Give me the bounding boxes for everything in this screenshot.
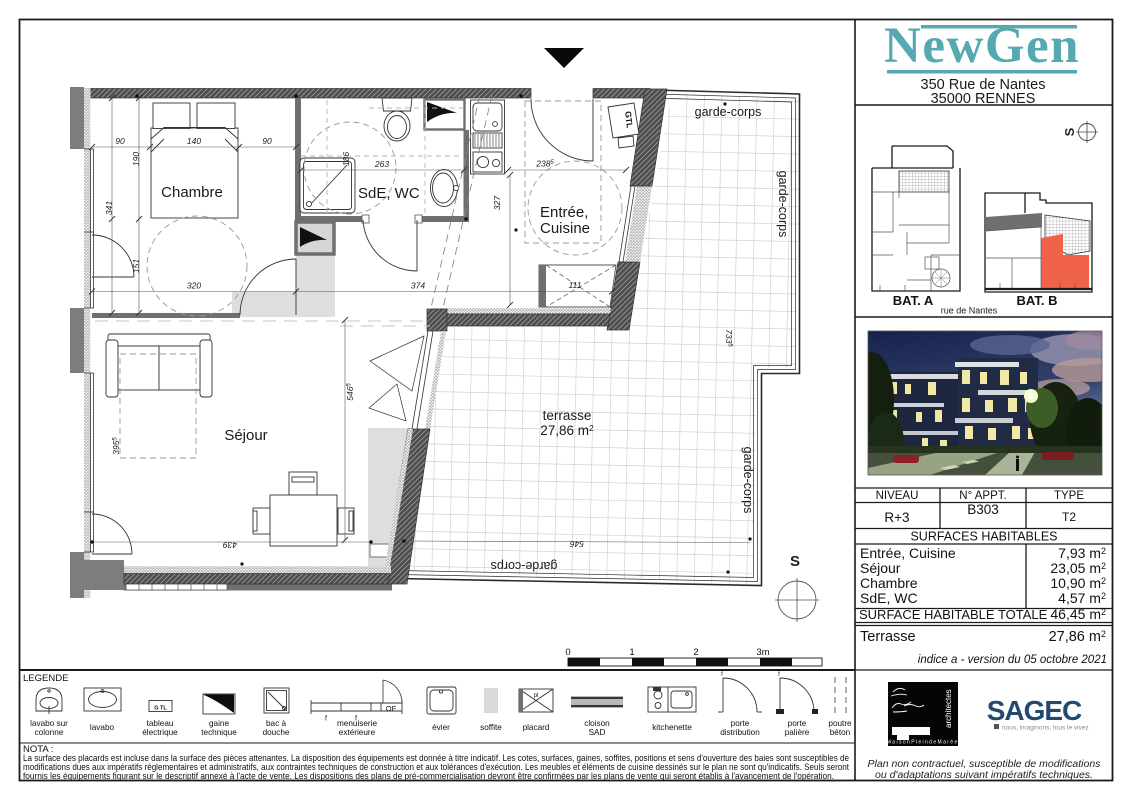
svg-text:distribution: distribution [720, 728, 760, 737]
svg-text:technique: technique [201, 728, 237, 737]
svg-text:SAD: SAD [589, 728, 606, 737]
svg-text:111: 111 [569, 280, 582, 290]
svg-text:porte: porte [788, 719, 807, 728]
svg-text:374: 374 [411, 281, 425, 291]
svg-text:garde-corps: garde-corps [776, 171, 790, 238]
svg-text:140: 140 [187, 136, 201, 146]
svg-text:placard: placard [523, 723, 550, 732]
svg-text:garde-corps: garde-corps [491, 559, 558, 573]
svg-text:Séjour: Séjour [224, 427, 267, 444]
svg-text:327: 327 [492, 196, 502, 210]
svg-text:186: 186 [341, 152, 351, 166]
svg-text:263: 263 [374, 159, 389, 169]
svg-text:R+3: R+3 [884, 510, 909, 525]
svg-text:0: 0 [565, 647, 570, 658]
svg-text:ou d'adaptations suivant impér: ou d'adaptations suivant impératifs tech… [875, 769, 1093, 781]
svg-text:lavabo: lavabo [90, 723, 115, 732]
svg-text:439: 439 [223, 540, 237, 550]
svg-text:35000 RENNES: 35000 RENNES [931, 91, 1036, 107]
svg-text:7,93 m2: 7,93 m2 [1058, 545, 1106, 561]
svg-text:OF: OF [386, 704, 397, 713]
svg-text:23,05 m2: 23,05 m2 [1050, 560, 1106, 576]
svg-text:2: 2 [693, 647, 698, 658]
svg-text:palière: palière [785, 728, 810, 737]
svg-text:f: f [325, 716, 327, 723]
svg-text:27,86 m2: 27,86 m2 [1049, 629, 1106, 645]
svg-text:SAGEC: SAGEC [987, 695, 1082, 726]
svg-text:B303: B303 [967, 502, 999, 517]
svg-text:fournis les équipements figura: fournis les équipements figurant sur le … [23, 771, 834, 781]
svg-text:tableau: tableau [147, 719, 174, 728]
svg-text:douche: douche [263, 728, 290, 737]
svg-text:Entrée,: Entrée, [540, 204, 588, 221]
svg-text:T2: T2 [1062, 510, 1076, 524]
svg-text:46,45 m2: 46,45 m2 [1050, 606, 1106, 622]
svg-text:bac à: bac à [266, 719, 286, 728]
svg-text:rue de Nantes: rue de Nantes [941, 306, 998, 316]
svg-text:4,57 m2: 4,57 m2 [1058, 590, 1106, 606]
svg-text:151: 151 [131, 259, 141, 273]
svg-text:SURFACES HABITABLES: SURFACES HABITABLES [910, 530, 1057, 544]
svg-text:N° APPT.: N° APPT. [959, 490, 1006, 502]
svg-text:Cuisine: Cuisine [540, 220, 590, 237]
svg-text:porte: porte [731, 719, 750, 728]
svg-text:garde-corps: garde-corps [741, 447, 755, 514]
svg-text:SdE, WC: SdE, WC [860, 590, 918, 606]
svg-text:S: S [1062, 127, 1077, 136]
svg-text:341: 341 [104, 201, 114, 215]
svg-text:NIVEAU: NIVEAU [876, 490, 919, 502]
svg-text:kitchenette: kitchenette [652, 723, 692, 732]
svg-text:cloison: cloison [584, 719, 610, 728]
svg-text:G TL: G TL [154, 706, 167, 712]
svg-text:Séjour: Séjour [860, 560, 901, 576]
svg-text:Chambre: Chambre [860, 575, 918, 591]
svg-text:poutre: poutre [828, 719, 852, 728]
svg-text:nous, imaginons, tous le vivez: nous, imaginons, tous le vivez [1002, 725, 1089, 732]
svg-text:BAT. A: BAT. A [893, 293, 934, 308]
svg-text:électrique: électrique [142, 728, 178, 737]
svg-text:soffite: soffite [480, 723, 502, 732]
svg-text:pl: pl [534, 693, 539, 699]
svg-text:terrasse: terrasse [543, 408, 592, 423]
svg-text:évier: évier [432, 723, 450, 732]
svg-text:garde-corps: garde-corps [695, 105, 762, 119]
svg-text:SdE, WC: SdE, WC [358, 185, 420, 202]
svg-text:S: S [790, 553, 800, 570]
svg-text:90: 90 [115, 136, 125, 146]
svg-text:architectes: architectes [944, 689, 953, 728]
svg-text:Entrée, Cuisine: Entrée, Cuisine [860, 545, 956, 561]
svg-text:BAT. B: BAT. B [1017, 293, 1058, 308]
svg-text:10,90 m2: 10,90 m2 [1050, 575, 1106, 591]
svg-text:béton: béton [830, 728, 851, 737]
svg-text:gaine: gaine [209, 719, 229, 728]
svg-text:SURFACE HABITABLE TOTALE: SURFACE HABITABLE TOTALE [859, 607, 1048, 622]
svg-text:Terrasse: Terrasse [860, 629, 916, 645]
svg-text:Chambre: Chambre [161, 184, 223, 201]
svg-text:menuiserie: menuiserie [337, 719, 377, 728]
svg-text:3m: 3m [756, 647, 769, 658]
svg-text:1: 1 [629, 647, 634, 658]
svg-text:lavabo sur: lavabo sur [30, 719, 68, 728]
svg-text:TYPE: TYPE [1054, 490, 1084, 502]
svg-text:27,86 m2: 27,86 m2 [540, 423, 594, 438]
svg-text:LEGENDE: LEGENDE [23, 673, 68, 684]
svg-text:546: 546 [570, 539, 584, 549]
svg-text:90: 90 [262, 136, 272, 146]
svg-text:190: 190 [131, 152, 141, 166]
svg-text:M a i s o n P l e i n d e: M a i s o n P l e i n d e M a r é e [887, 740, 958, 746]
svg-text:320: 320 [187, 281, 201, 291]
svg-text:indice a - version du 05 octob: indice a - version du 05 octobre 2021 [918, 654, 1107, 666]
svg-text:colonne: colonne [35, 728, 64, 737]
svg-text:GTL: GTL [623, 111, 635, 129]
svg-text:extérieure: extérieure [339, 728, 376, 737]
